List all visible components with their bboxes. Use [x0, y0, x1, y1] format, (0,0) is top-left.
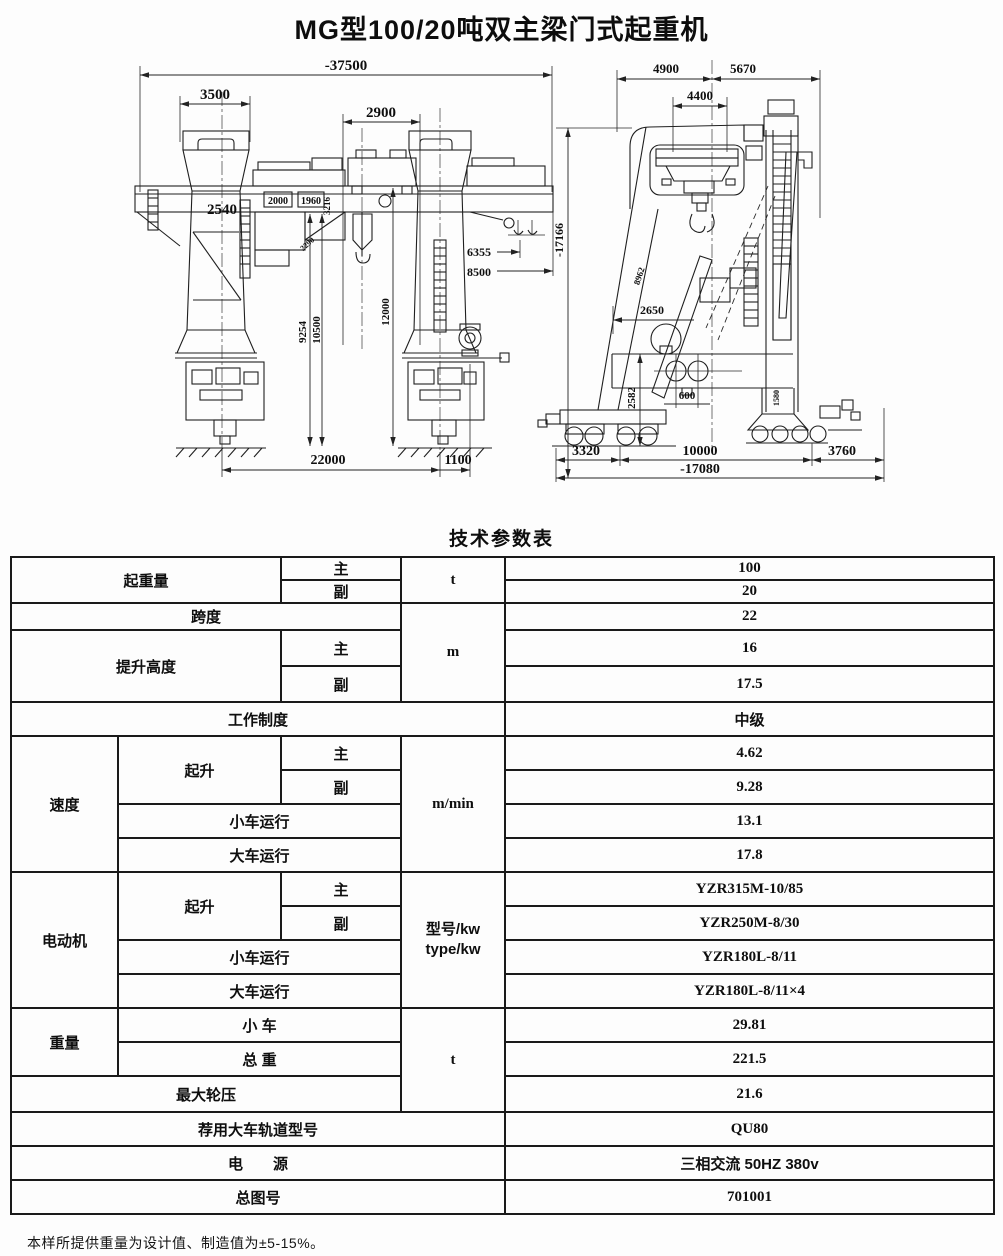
speed-aux-label: 副	[281, 770, 401, 804]
motor-main-label: 主	[281, 872, 401, 906]
span-label: 跨度	[11, 603, 401, 630]
dim-side-width-left: 4900	[653, 61, 679, 76]
rail-type-value: QU80	[505, 1112, 994, 1146]
rail-type-label: 荐用大车轨道型号	[11, 1112, 505, 1146]
speed-trolley-label: 小车运行	[118, 804, 401, 838]
side-left-bogie	[538, 410, 676, 446]
weight-trolley-label: 小 车	[118, 1008, 401, 1042]
dim-side-leg-column: 1580	[772, 390, 781, 406]
table-row: 起重量 主 t 100	[11, 557, 994, 580]
dim-side-margin-left: 3320	[572, 444, 600, 459]
dim-front-box-right: 1960	[301, 196, 321, 207]
table-row: 荐用大车轨道型号 QU80	[11, 1112, 994, 1146]
dim-front-hook-lower: 8500	[467, 265, 491, 279]
table-row: 电 源 三相交流 50HZ 380v	[11, 1146, 994, 1180]
dim-side-sill-height: 2582	[626, 387, 638, 410]
dim-front-overhang: 1100	[444, 453, 471, 468]
dim-side-wheel-spacing: 600	[679, 390, 696, 402]
table-row: 总图号 701001	[11, 1180, 994, 1214]
motor-hoist-label: 起升	[118, 872, 281, 940]
catalog-page: MG型100/20吨双主梁门式起重机 -37500 3500	[0, 0, 1003, 1256]
dim-side-overall-length: -17080	[680, 462, 720, 477]
motor-unit: 型号/kw type/kw	[401, 872, 505, 1008]
motor-main-value: YZR315M-10/85	[505, 872, 994, 906]
lifting-height-label: 提升高度	[11, 630, 281, 702]
table-row: 跨度 m 22	[11, 603, 994, 630]
dim-front-height-a: 9254	[297, 321, 309, 344]
front-view: -37500 3500 2900	[135, 58, 553, 477]
speed-crane-value: 17.8	[505, 838, 994, 872]
power-value: 三相交流 50HZ 380v	[505, 1146, 994, 1180]
side-tower-mast	[700, 100, 798, 412]
motor-label: 电动机	[11, 872, 118, 1008]
side-right-bogie	[746, 388, 862, 443]
front-right-leg	[398, 131, 509, 457]
speed-trolley-value: 13.1	[505, 804, 994, 838]
side-view: 4900 5670 4400 -17166	[538, 60, 884, 482]
dim-side-wheel-base: 10000	[683, 444, 718, 459]
front-hoist-trolley	[348, 150, 416, 263]
dim-front-leg-width: 2540	[207, 202, 237, 218]
weight-label: 重量	[11, 1008, 118, 1076]
lifting-height-main-label: 主	[281, 630, 401, 666]
table-row: 速度 起升 主 m/min 4.62	[11, 736, 994, 770]
duty-label: 工作制度	[11, 702, 505, 736]
drawing-no-label: 总图号	[11, 1180, 505, 1214]
dim-front-height-c: 12000	[380, 298, 392, 326]
motor-unit-line2: type/kw	[406, 940, 500, 960]
dim-side-overall-height: -17166	[552, 223, 566, 257]
max-wheel-load-value: 21.6	[505, 1076, 994, 1112]
dim-front-box-left: 2000	[268, 196, 288, 207]
dim-front-height-b: 10500	[311, 316, 323, 344]
table-row: 工作制度 中级	[11, 702, 994, 736]
lifting-capacity-label: 起重量	[11, 557, 281, 603]
speed-main-value: 4.62	[505, 736, 994, 770]
motor-aux-label: 副	[281, 906, 401, 940]
speed-hoist-label: 起升	[118, 736, 281, 804]
motor-crane-value: YZR180L-8/11×4	[505, 974, 994, 1008]
length-unit: m	[401, 603, 505, 702]
speed-label: 速度	[11, 736, 118, 872]
footnote: 本样所提供重量为设计值、制造值为±5-15%。	[27, 1233, 325, 1253]
speed-unit: m/min	[401, 736, 505, 872]
dim-front-girder-depth: 3216	[322, 197, 332, 216]
dim-front-span: 22000	[311, 453, 346, 468]
span-value: 22	[505, 603, 994, 630]
table-title: 技术参数表	[0, 524, 1003, 551]
lifting-capacity-main-value: 100	[505, 557, 994, 580]
speed-crane-label: 大车运行	[118, 838, 401, 872]
lifting-height-aux-value: 17.5	[505, 666, 994, 702]
dim-side-width-right: 5670	[730, 61, 756, 76]
front-left-leg	[175, 131, 266, 457]
weight-trolley-value: 29.81	[505, 1008, 994, 1042]
front-right-girder-detail	[467, 158, 545, 235]
spec-table: 起重量 主 t 100 副 20 跨度 m 22 提升高度 主 16 副 17.	[10, 556, 995, 1215]
table-row: 电动机 起升 主 型号/kw type/kw YZR315M-10/85	[11, 872, 994, 906]
motor-crane-label: 大车运行	[118, 974, 401, 1008]
speed-main-label: 主	[281, 736, 401, 770]
dim-front-brace: 2290	[298, 235, 316, 252]
side-left-leg	[598, 127, 712, 410]
weight-total-label: 总 重	[118, 1042, 401, 1076]
lifting-capacity-aux-value: 20	[505, 580, 994, 603]
dim-front-hook-upper: 6355	[467, 245, 491, 259]
dim-side-margin-right: 3760	[828, 444, 856, 459]
duty-value: 中级	[505, 702, 994, 736]
weight-unit: t	[401, 1008, 505, 1112]
crane-engineering-drawing: -37500 3500 2900	[0, 0, 1003, 512]
lifting-capacity-aux-label: 副	[281, 580, 401, 603]
lifting-capacity-unit: t	[401, 557, 505, 603]
speed-aux-value: 9.28	[505, 770, 994, 804]
motor-trolley-label: 小车运行	[118, 940, 401, 974]
dim-front-overall-width: -37500	[325, 58, 368, 74]
dim-front-hoist-width: 2900	[366, 105, 396, 121]
dim-side-leg-offset: 2650	[640, 303, 664, 317]
max-wheel-load-label: 最大轮压	[11, 1076, 401, 1112]
motor-unit-line1: 型号/kw	[406, 920, 500, 940]
motor-aux-value: YZR250M-8/30	[505, 906, 994, 940]
lifting-capacity-main-label: 主	[281, 557, 401, 580]
power-label: 电 源	[11, 1146, 505, 1180]
drawing-no-value: 701001	[505, 1180, 994, 1214]
dim-front-cap-width: 3500	[200, 87, 230, 103]
motor-trolley-value: YZR180L-8/11	[505, 940, 994, 974]
weight-total-value: 221.5	[505, 1042, 994, 1076]
lifting-height-main-value: 16	[505, 630, 994, 666]
lifting-height-aux-label: 副	[281, 666, 401, 702]
table-row: 重量 小 车 t 29.81	[11, 1008, 994, 1042]
dim-side-cab-width: 4400	[687, 88, 713, 103]
